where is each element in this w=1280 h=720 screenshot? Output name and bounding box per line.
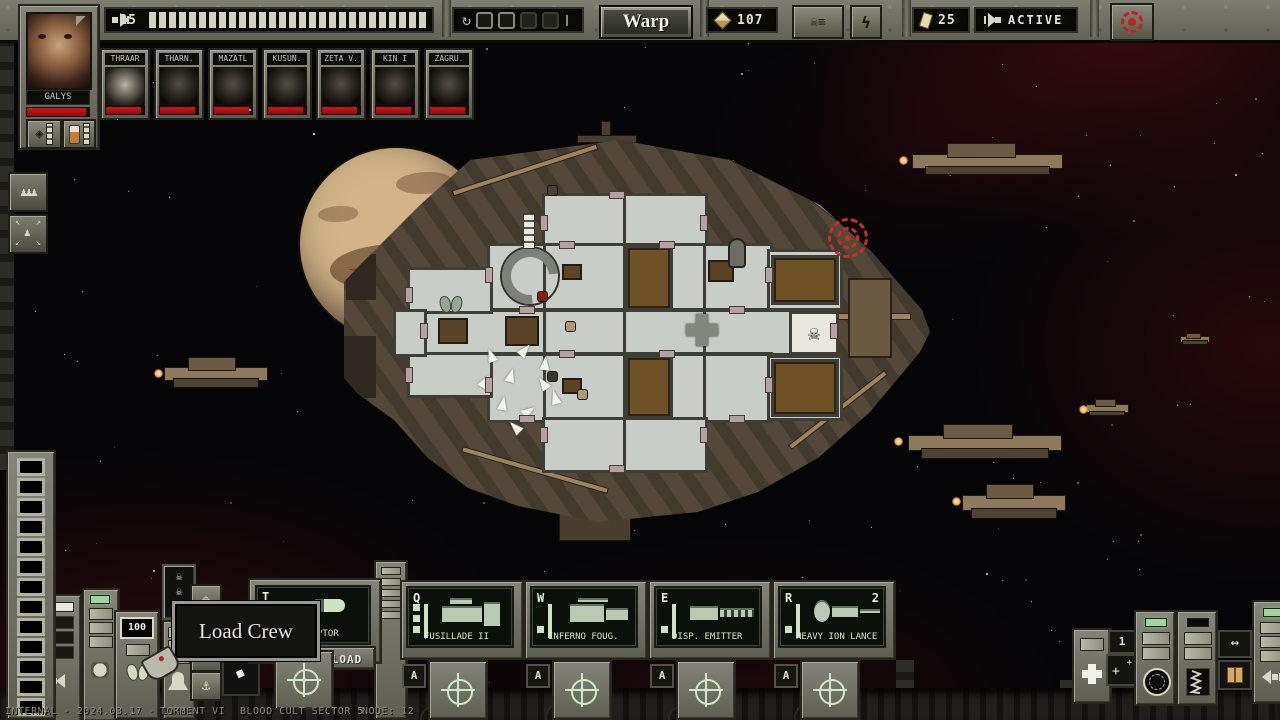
drive-icon — [983, 13, 1001, 27]
tooltip-text: Load Crew — [199, 619, 293, 644]
weapon-module-w: W INFERNO FOUG. A — [524, 580, 648, 720]
player-portrait[interactable] — [26, 12, 92, 90]
warp-rift-marker[interactable] — [826, 216, 870, 260]
item-charge-bar — [83, 123, 90, 145]
crew-sprite[interactable] — [566, 322, 575, 331]
door — [421, 324, 427, 338]
crosshair-icon — [689, 673, 723, 707]
door — [486, 268, 492, 282]
door — [541, 216, 547, 230]
cross-room-icon — [686, 314, 718, 346]
warp-rift-button[interactable] — [1110, 3, 1154, 41]
transfer-button[interactable]: ↔ — [1218, 630, 1252, 658]
medbay-count: 1 — [1108, 630, 1136, 654]
door — [766, 378, 772, 392]
drive-status-panel: ACTIVE — [974, 7, 1078, 33]
pipe-decoration — [0, 40, 14, 470]
top-bar: 25 ↻ Warp 107 ☠≡ ϟ — [0, 0, 1280, 43]
bridge-emblem: ☠ — [792, 314, 836, 352]
item-slot-vial[interactable] — [62, 119, 96, 149]
background-ship — [1083, 396, 1127, 418]
thruster-module[interactable] — [1252, 600, 1280, 704]
oxygen-value: 100 — [128, 622, 146, 633]
select-all-crew-button[interactable]: ♟♟♟ — [8, 172, 48, 212]
anchor-button[interactable]: ⚓ — [190, 671, 222, 701]
contracts-icon: ☠≡ — [810, 15, 826, 30]
currency-diamond-icon — [713, 11, 731, 29]
status-light-dark — [1187, 618, 1209, 627]
door — [541, 428, 547, 442]
anchor-icon: ⚓ — [202, 678, 210, 694]
player-panel: GALYS ◈ — [18, 4, 100, 150]
door — [406, 368, 412, 382]
game-screen: ☠ 25 ↻ — [0, 0, 1280, 720]
ship-room[interactable] — [396, 312, 424, 354]
door — [701, 216, 707, 230]
background-ship — [1178, 331, 1208, 345]
weapon-label: HEAVY ION LANCE — [796, 632, 877, 642]
warp-charge-panel: ↻ — [452, 7, 584, 33]
mast-crossbar — [578, 136, 636, 142]
crew-sprite[interactable] — [578, 390, 587, 399]
treasury-panel: 107 — [706, 7, 778, 33]
torpedo-prop — [730, 240, 744, 266]
lightning-icon: ϟ — [861, 13, 871, 32]
skull-icon: ☠ — [164, 569, 194, 584]
pip-endcap — [566, 15, 568, 26]
warp-pip — [542, 12, 559, 29]
oxygen-room-icon — [438, 296, 462, 314]
crosshair-icon — [441, 673, 475, 707]
warp-pip — [498, 12, 515, 29]
oxygen-readout: 100 — [120, 617, 154, 639]
ammo-pip — [661, 626, 668, 633]
ammo-pip — [413, 604, 420, 611]
door — [660, 351, 674, 357]
door — [560, 351, 574, 357]
ladder-prop — [524, 214, 534, 248]
warp-pip — [520, 12, 537, 29]
console — [562, 264, 582, 280]
thrust-icon — [112, 13, 115, 27]
weapon-label: DISP. EMITTER — [672, 632, 742, 642]
coil-icon — [1186, 668, 1210, 696]
status-bar: INTERNAL - 2024.03.17 - 1940 TORMENT VI … — [0, 704, 1280, 720]
ordnance-label: PTOR — [317, 629, 339, 639]
thrust-meter-panel: 25 — [104, 7, 434, 33]
cargo-button[interactable] — [1218, 660, 1252, 690]
diamond-pointer-icon: ◆ — [233, 661, 249, 682]
fuel-value: 25 — [938, 13, 956, 28]
console — [505, 316, 539, 346]
warp-pip — [476, 12, 493, 29]
rift-spiral-icon — [1121, 11, 1143, 33]
machinery-room[interactable] — [774, 258, 836, 302]
machinery-room[interactable] — [774, 362, 836, 414]
refresh-icon: ↻ — [462, 13, 471, 28]
crew-sprite[interactable] — [538, 292, 547, 301]
weapon-hotkey: R — [785, 591, 792, 605]
door — [486, 378, 492, 392]
status-light-green — [1145, 618, 1167, 627]
drive-status: ACTIVE — [1008, 13, 1063, 27]
weapon-module-q: Q FUSILLADE II A — [400, 580, 524, 720]
status-light-green — [1263, 608, 1280, 617]
door — [610, 192, 624, 198]
autofire-button[interactable]: A — [402, 664, 426, 688]
door — [701, 428, 707, 442]
player-ship-map[interactable]: ☠ — [310, 128, 940, 533]
power-button[interactable]: ϟ — [850, 5, 882, 39]
tooltip: Load Crew — [172, 601, 320, 661]
door — [560, 242, 574, 248]
ammo-pip — [413, 626, 420, 633]
autofire-button[interactable]: A — [526, 664, 550, 688]
crosshair-icon — [565, 673, 599, 707]
crate-icon — [1227, 667, 1243, 683]
vial-icon — [69, 125, 80, 144]
player-name: GALYS — [44, 92, 71, 102]
ammo-pip — [785, 626, 792, 633]
machinery-room[interactable] — [628, 358, 670, 416]
warp-button[interactable]: Warp — [599, 5, 693, 39]
disperse-crew-button[interactable]: ↖ ↗ ↙ ↘ ♟ — [8, 214, 48, 254]
crew-sprite[interactable] — [548, 372, 557, 381]
engine-icon[interactable] — [91, 662, 109, 678]
crosshair-icon — [813, 673, 847, 707]
item-slot-gem[interactable]: ◈ — [26, 119, 62, 149]
status-location: BLOOD CULT SECTOR 5 — [240, 706, 364, 717]
machinery-room[interactable] — [628, 248, 670, 308]
door — [406, 288, 412, 302]
status-light-green — [90, 595, 110, 604]
shield-coil-icon — [1143, 668, 1171, 696]
gem-icon: ◈ — [35, 126, 43, 142]
background-ship — [158, 352, 266, 392]
ship-room[interactable] — [410, 355, 490, 395]
door — [730, 307, 744, 313]
door — [610, 466, 624, 472]
weapon-label: FUSILLADE II — [424, 632, 489, 642]
fuel-panel: 25 — [912, 7, 970, 33]
door — [520, 307, 534, 313]
crew-sprite[interactable] — [548, 186, 557, 195]
weapon-hotkey: W — [537, 591, 544, 605]
item-charge-bar — [46, 123, 53, 145]
background-ship — [956, 478, 1064, 524]
medical-cross-icon — [1082, 664, 1102, 684]
weapon-module-r: R 2 HEAVY ION LANCE A — [772, 580, 896, 720]
autofire-button[interactable]: A — [650, 664, 674, 688]
door — [831, 324, 837, 338]
door — [520, 416, 534, 422]
load-button-label: LOAD — [332, 653, 363, 666]
crew-group-icon: ♟♟♟ — [20, 185, 36, 199]
ammo-pip — [413, 615, 420, 622]
weapon-label: INFERNO FOUG. — [548, 632, 618, 642]
hull-gauge — [6, 450, 56, 720]
treasury-value: 107 — [737, 13, 763, 28]
weapon-hotkey: E — [661, 591, 668, 605]
ammo-pip — [537, 626, 544, 633]
left-right-arrows-icon: ↔ — [1231, 635, 1239, 651]
status-game: TORMENT VI — [160, 706, 225, 717]
disperse-icon: ↖ ↗ ↙ ↘ ♟ — [16, 222, 40, 246]
autofire-button[interactable]: A — [774, 664, 798, 688]
fuel-canister-icon — [919, 11, 933, 28]
door — [766, 268, 772, 282]
thrust-segments — [149, 12, 426, 28]
player-health-bar — [26, 107, 90, 117]
coil-module[interactable] — [1176, 610, 1218, 706]
weapon-module-e: E DISP. EMITTER A — [648, 580, 772, 720]
crosshair-icon — [287, 663, 321, 697]
door — [730, 416, 744, 422]
warp-button-label: Warp — [623, 11, 669, 33]
status-node: NODE: 12 — [362, 706, 414, 717]
weapon-count: 2 — [872, 591, 879, 605]
shield-module[interactable] — [1134, 610, 1176, 706]
contracts-button[interactable]: ☠≡ — [792, 5, 844, 39]
door — [660, 242, 674, 248]
console — [438, 318, 468, 344]
weapon-hotkey: Q — [413, 591, 420, 605]
player-name-plate: GALYS — [26, 90, 90, 105]
